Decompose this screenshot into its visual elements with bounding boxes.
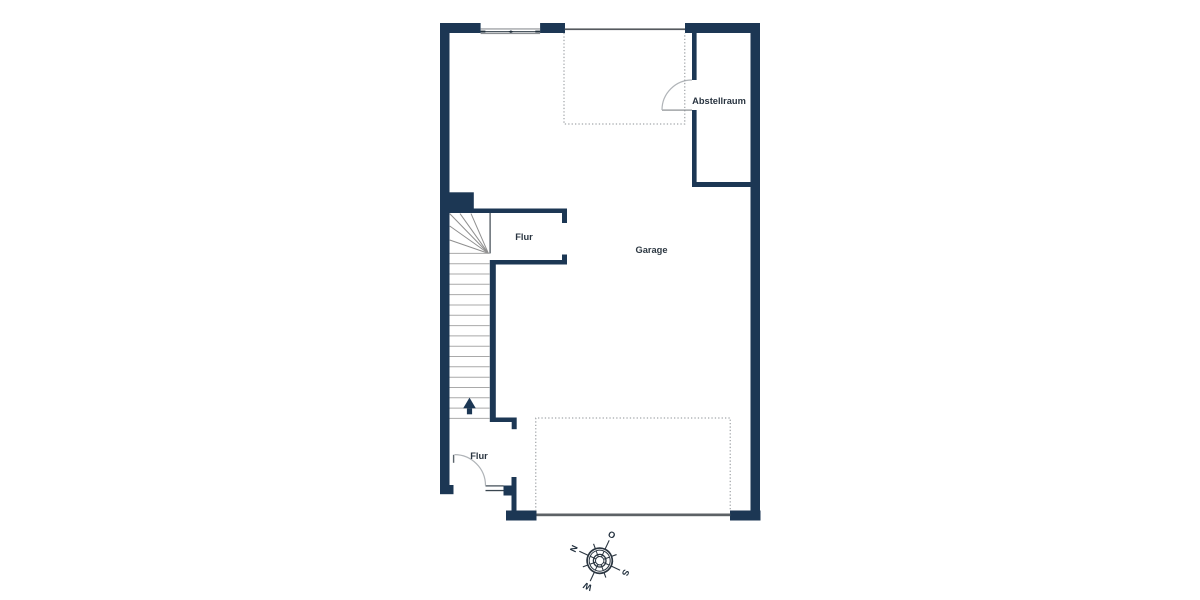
svg-text:Flur: Flur [515,232,533,242]
svg-text:Flur: Flur [470,451,488,461]
svg-text:Abstellraum: Abstellraum [692,96,746,106]
svg-text:Garage: Garage [635,245,667,255]
